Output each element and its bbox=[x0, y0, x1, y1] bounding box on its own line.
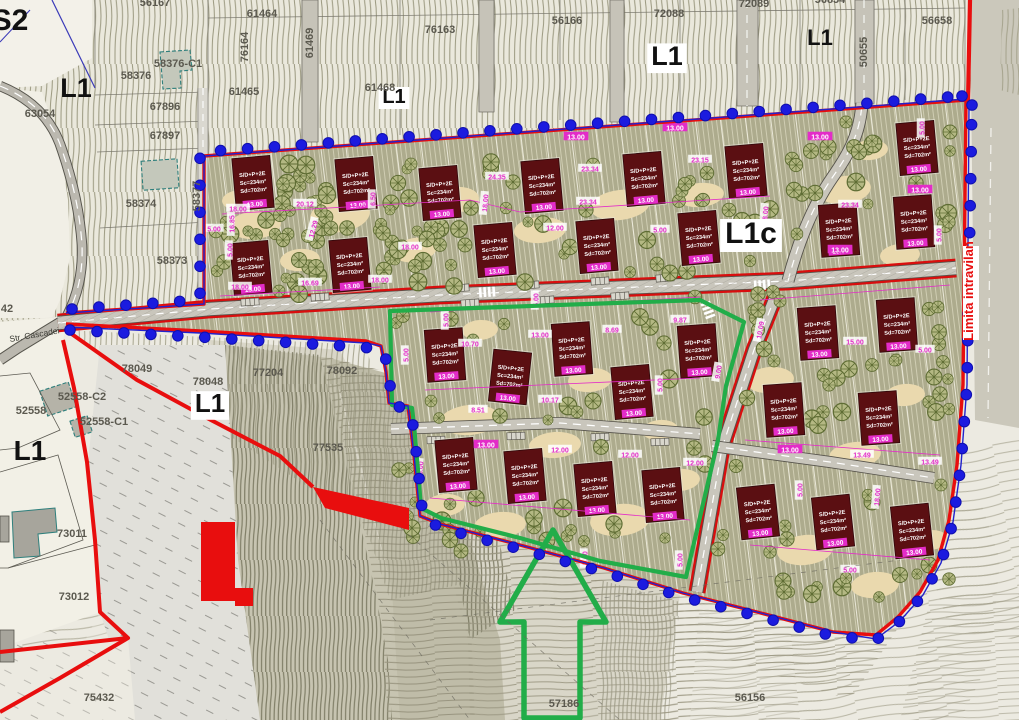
svg-text:72088: 72088 bbox=[654, 8, 685, 20]
svg-text:56658: 56658 bbox=[922, 15, 953, 27]
svg-text:57186: 57186 bbox=[549, 698, 580, 710]
svg-text:12.00: 12.00 bbox=[686, 461, 704, 468]
svg-text:13.00: 13.00 bbox=[589, 507, 606, 515]
svg-text:5.00: 5.00 bbox=[937, 228, 944, 242]
svg-text:13.00: 13.00 bbox=[740, 189, 757, 197]
svg-text:58374: 58374 bbox=[126, 198, 157, 210]
svg-text:L1c: L1c bbox=[725, 217, 777, 250]
svg-text:13.00: 13.00 bbox=[693, 256, 710, 264]
svg-text:76163: 76163 bbox=[425, 24, 456, 36]
svg-text:58373: 58373 bbox=[157, 255, 188, 267]
svg-text:52558-C2: 52558-C2 bbox=[58, 391, 106, 403]
svg-text:13.00: 13.00 bbox=[626, 410, 643, 418]
svg-text:78048: 78048 bbox=[193, 376, 224, 388]
svg-text:13.00: 13.00 bbox=[657, 513, 674, 521]
svg-text:20.12: 20.12 bbox=[296, 202, 314, 209]
svg-text:L1: L1 bbox=[60, 73, 92, 103]
svg-text:16.69: 16.69 bbox=[301, 281, 319, 288]
svg-text:77204: 77204 bbox=[253, 367, 284, 379]
svg-text:56166: 56166 bbox=[552, 15, 583, 27]
svg-text:13.00: 13.00 bbox=[344, 283, 361, 291]
svg-text:13.49: 13.49 bbox=[853, 453, 871, 460]
svg-text:13.49: 13.49 bbox=[921, 460, 939, 467]
svg-text:50655: 50655 bbox=[858, 37, 870, 68]
svg-text:24.35: 24.35 bbox=[488, 175, 506, 182]
svg-text:L1: L1 bbox=[14, 435, 47, 466]
svg-text:L1: L1 bbox=[807, 25, 833, 50]
svg-text:23.34: 23.34 bbox=[579, 200, 597, 207]
svg-text:58376: 58376 bbox=[121, 70, 152, 82]
svg-text:13.00: 13.00 bbox=[872, 436, 889, 444]
svg-text:S2: S2 bbox=[0, 4, 28, 37]
svg-text:8.51: 8.51 bbox=[471, 408, 485, 415]
svg-text:Limita intravilan: Limita intravilan bbox=[961, 241, 976, 341]
svg-text:75432: 75432 bbox=[84, 692, 115, 704]
svg-text:5.00: 5.00 bbox=[678, 553, 685, 567]
svg-text:13.00: 13.00 bbox=[519, 494, 536, 502]
svg-text:10.17: 10.17 bbox=[541, 398, 559, 405]
svg-text:13.00: 13.00 bbox=[434, 211, 451, 219]
svg-text:78049: 78049 bbox=[122, 363, 153, 375]
svg-text:13.00: 13.00 bbox=[911, 166, 928, 174]
svg-text:73012: 73012 bbox=[59, 591, 90, 603]
svg-text:61469: 61469 bbox=[304, 28, 316, 59]
svg-text:15.00: 15.00 bbox=[846, 340, 864, 347]
svg-text:52558-C1: 52558-C1 bbox=[80, 416, 128, 428]
svg-text:13.00: 13.00 bbox=[666, 126, 684, 133]
svg-text:12.00: 12.00 bbox=[551, 448, 569, 455]
svg-text:5.00: 5.00 bbox=[228, 243, 235, 257]
svg-text:L1: L1 bbox=[651, 41, 683, 71]
svg-text:5.00: 5.00 bbox=[444, 313, 451, 327]
svg-text:58377: 58377 bbox=[191, 181, 203, 212]
svg-text:56156: 56156 bbox=[735, 692, 766, 704]
svg-text:5.00: 5.00 bbox=[207, 227, 221, 234]
svg-text:76164: 76164 bbox=[239, 31, 251, 62]
svg-text:5.00: 5.00 bbox=[798, 483, 805, 497]
svg-text:5.00: 5.00 bbox=[653, 228, 667, 235]
svg-text:5.00: 5.00 bbox=[843, 568, 857, 575]
svg-text:73011: 73011 bbox=[57, 528, 87, 540]
svg-text:13.00: 13.00 bbox=[890, 343, 907, 351]
svg-text:13.00: 13.00 bbox=[591, 264, 608, 272]
svg-text:61468: 61468 bbox=[365, 82, 396, 94]
svg-text:56167: 56167 bbox=[140, 0, 171, 9]
svg-text:18.00: 18.00 bbox=[401, 245, 419, 252]
svg-text:L1: L1 bbox=[195, 388, 225, 418]
svg-text:10.70: 10.70 bbox=[461, 342, 479, 349]
svg-text:63054: 63054 bbox=[25, 108, 56, 120]
svg-text:13.00: 13.00 bbox=[781, 448, 799, 455]
svg-text:23.15: 23.15 bbox=[691, 158, 709, 165]
svg-text:5.00: 5.00 bbox=[920, 121, 927, 135]
svg-text:13.00: 13.00 bbox=[438, 373, 455, 381]
svg-text:5.00: 5.00 bbox=[918, 348, 932, 355]
svg-text:67896: 67896 bbox=[150, 101, 181, 113]
svg-text:6.50: 6.50 bbox=[371, 192, 378, 206]
svg-text:13.00: 13.00 bbox=[811, 135, 829, 142]
svg-text:23.34: 23.34 bbox=[581, 167, 599, 174]
svg-text:18.00: 18.00 bbox=[231, 285, 249, 292]
svg-text:5.00: 5.00 bbox=[404, 348, 411, 362]
svg-text:56854: 56854 bbox=[815, 0, 846, 6]
svg-text:12.00: 12.00 bbox=[546, 226, 564, 233]
svg-text:12.00: 12.00 bbox=[621, 453, 639, 460]
svg-text:67897: 67897 bbox=[150, 130, 181, 142]
svg-text:13.00: 13.00 bbox=[567, 135, 585, 142]
svg-text:8.69: 8.69 bbox=[605, 328, 619, 335]
svg-text:13.00: 13.00 bbox=[811, 351, 828, 359]
svg-text:13.00: 13.00 bbox=[777, 428, 794, 436]
svg-text:18.00: 18.00 bbox=[371, 278, 389, 285]
svg-text:9.87: 9.87 bbox=[673, 318, 687, 325]
svg-text:13.00: 13.00 bbox=[565, 367, 582, 375]
svg-text:78092: 78092 bbox=[327, 365, 358, 377]
svg-text:61465: 61465 bbox=[229, 86, 260, 98]
svg-text:13.00: 13.00 bbox=[907, 240, 924, 248]
svg-text:16.85: 16.85 bbox=[230, 215, 237, 233]
svg-text:72089: 72089 bbox=[739, 0, 770, 10]
svg-text:61464: 61464 bbox=[247, 8, 278, 20]
svg-text:77535: 77535 bbox=[313, 442, 344, 454]
svg-text:13.00: 13.00 bbox=[477, 443, 495, 450]
svg-text:13.00: 13.00 bbox=[911, 188, 929, 195]
svg-text:13.00: 13.00 bbox=[831, 248, 849, 255]
svg-text:13.00: 13.00 bbox=[691, 369, 708, 377]
svg-text:23.34: 23.34 bbox=[841, 203, 859, 210]
svg-text:58376-C1: 58376-C1 bbox=[154, 58, 202, 70]
svg-text:13.00: 13.00 bbox=[531, 333, 549, 340]
svg-text:42: 42 bbox=[1, 303, 13, 315]
svg-text:13.00: 13.00 bbox=[489, 268, 506, 276]
svg-text:5.00: 5.00 bbox=[658, 378, 665, 392]
svg-text:13.00: 13.00 bbox=[450, 483, 467, 491]
svg-text:52558: 52558 bbox=[16, 405, 47, 417]
